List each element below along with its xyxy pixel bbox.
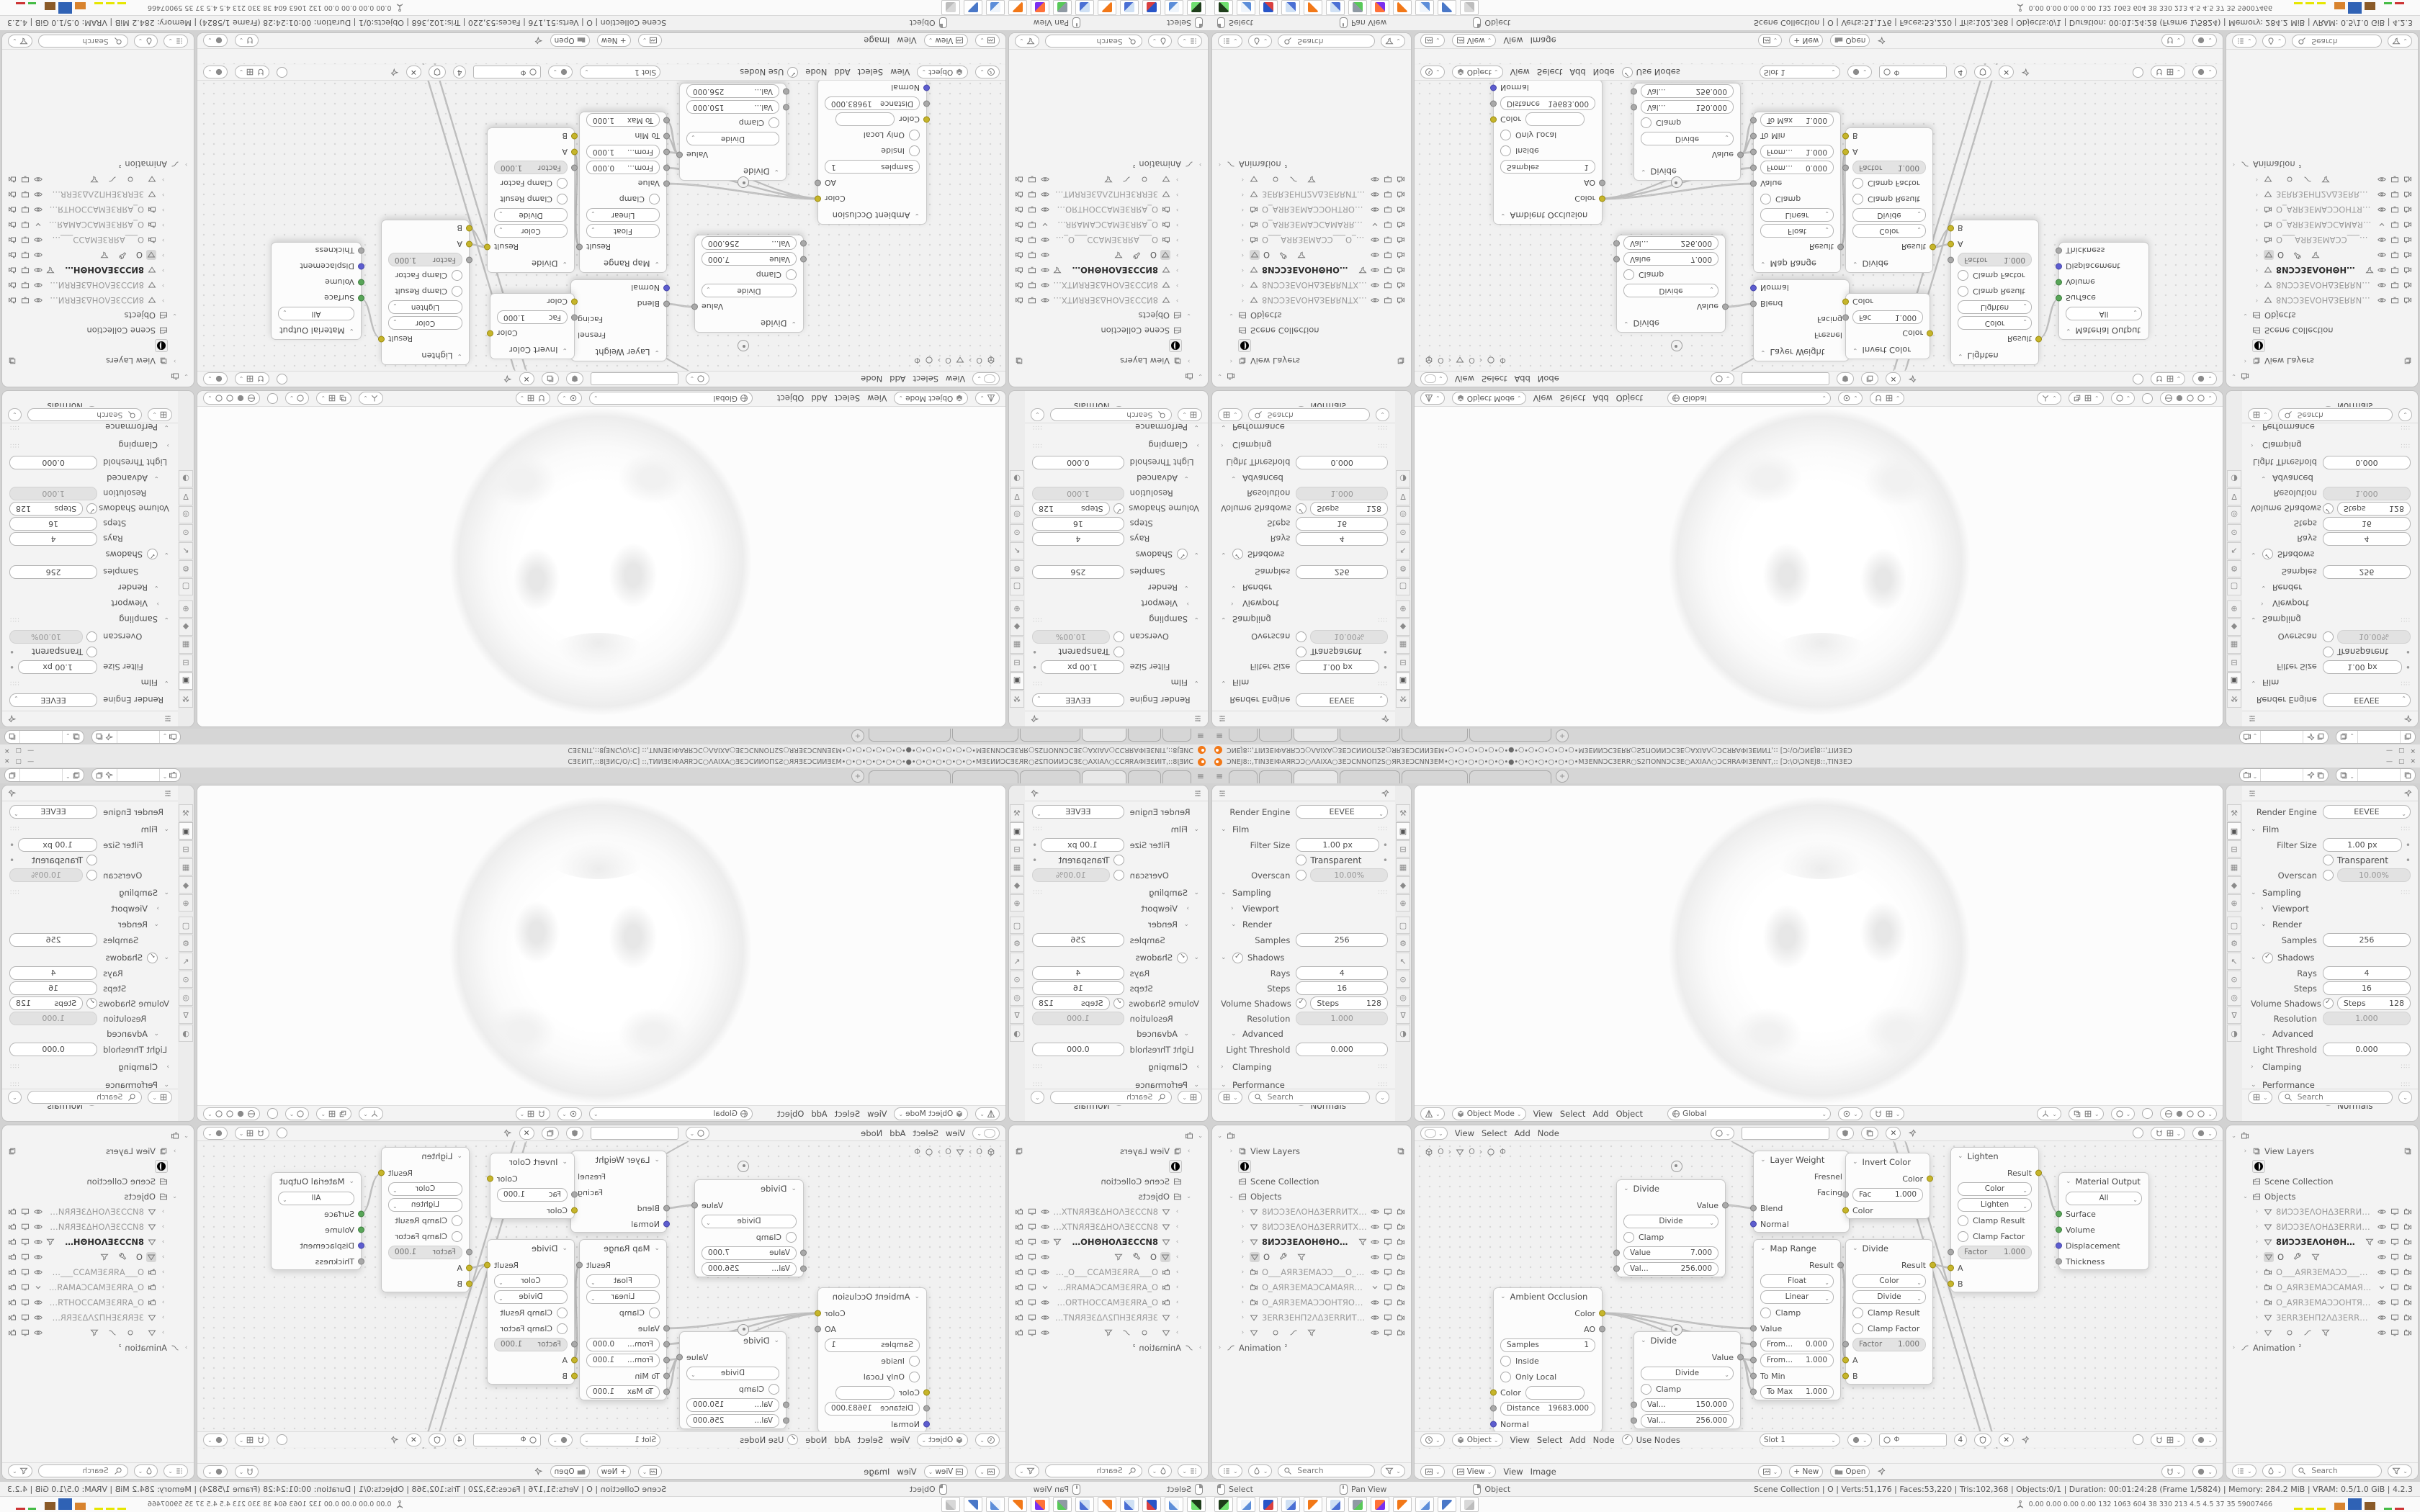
eye-toggle-icon[interactable] (2378, 1223, 2386, 1231)
outliner-row-8ИƆƆ3EΛOHΔ3ERRИTX3ET0T3EXT[interactable]: ›8ИƆƆ3EΛOHΔ3ERRИTX3ET0T3EXT (5, 1219, 189, 1234)
outliner-row-globebtn[interactable] (2231, 338, 2415, 354)
properties-tab-0[interactable]: ⚒ (1010, 690, 1024, 708)
proportional-toggle[interactable] (277, 1128, 287, 1138)
node-select[interactable]: Divide (686, 1367, 779, 1380)
camera-toggle-icon[interactable] (8, 297, 17, 305)
outliner-row-8ИƆƆ3EΛOHΔ3ERRИTX3ET0T3EXT[interactable]: ›8ИƆƆ3EΛOHΔ3ERRИTX3ET0T3EXT (5, 1204, 189, 1219)
menu-view[interactable]: View (867, 1109, 887, 1119)
rays-field[interactable]: 4 (2323, 532, 2411, 546)
taskbar-app-notepad[interactable] (1237, 1497, 1255, 1512)
input-socket[interactable] (1750, 181, 1757, 187)
node-header[interactable]: ⌄Map Range (580, 1240, 666, 1257)
filter-button[interactable] (1381, 35, 1405, 48)
eye-toggle-icon[interactable] (2378, 1313, 2386, 1322)
material-browse-button[interactable] (1711, 373, 1735, 386)
snap-dropdown[interactable] (516, 1107, 551, 1120)
outliner-row-8ИƆƆ3EΛOHΘHOΛ3EƆƆИ8[interactable]: ›8ИƆƆ3EΛOHΘHOΛ3EƆƆИ8 (1012, 263, 1204, 278)
node-lighten[interactable]: ⌄LightenResultColorLightenClamp ResultCl… (1950, 1147, 2039, 1292)
filter-button[interactable] (8, 1464, 32, 1477)
workspace-tab-1[interactable] (1162, 770, 1191, 783)
shading-wireframe-icon[interactable] (2164, 395, 2173, 403)
clamp-factor-checkbox[interactable] (1958, 271, 1968, 282)
outliner-row-mesh[interactable]: › (1216, 1325, 1408, 1340)
eye-toggle-icon[interactable] (1041, 1298, 1049, 1307)
input-socket[interactable] (1490, 1390, 1497, 1396)
camera-toggle-icon[interactable] (1397, 251, 1405, 260)
section-render[interactable]: ⌄Render (1221, 917, 1388, 932)
properties-tab-6[interactable]: ▢ (1396, 578, 1410, 595)
input-socket[interactable] (1842, 299, 1849, 305)
menu-view[interactable]: View (946, 1128, 965, 1138)
shading-wireframe-icon[interactable] (247, 395, 256, 403)
funnel-icon[interactable] (1297, 251, 1306, 260)
properties-tab-8[interactable]: ↖ (2227, 542, 2241, 559)
section-advanced[interactable]: ⌄Advanced (1221, 470, 1388, 486)
layers-toggle-icon[interactable] (1397, 357, 1405, 366)
world-icon[interactable] (1169, 1160, 1182, 1173)
monitor-toggle-icon[interactable] (1384, 282, 1392, 290)
node-material-output[interactable]: ⌄Material OutputAllSurfaceVolumeDisplace… (271, 242, 362, 340)
outliner-row-O_AЯR3EMAƆƆOHTЯO_O_OЯTH[interactable]: ›O_AЯR3EMAƆƆOHTЯO_O_OЯTH (2231, 1295, 2415, 1310)
input-socket[interactable] (1750, 1221, 1757, 1228)
eye-toggle-icon[interactable] (2378, 266, 2386, 275)
eye-toggle-icon[interactable] (34, 191, 42, 199)
node-value-field[interactable]: Factor1.000 (1852, 161, 1926, 175)
properties-tab-6[interactable]: ▢ (179, 578, 193, 595)
input-socket[interactable] (466, 225, 472, 232)
taskbar-app-monitor-app[interactable] (1053, 1497, 1072, 1512)
monitor-toggle-icon[interactable] (1028, 1207, 1036, 1216)
eye-toggle-icon[interactable] (2378, 282, 2386, 290)
input-socket[interactable] (571, 133, 578, 140)
new-image-button[interactable]: + New (597, 1465, 631, 1478)
proportional-toggle[interactable] (277, 1434, 287, 1445)
transparent-checkbox[interactable] (2323, 855, 2334, 865)
eye-toggle-icon[interactable] (2378, 1253, 2386, 1261)
shader-type-dropdown[interactable]: Object (1452, 1434, 1503, 1446)
output-socket[interactable] (1599, 180, 1605, 186)
shading-wireframe-icon[interactable] (247, 1110, 256, 1118)
camera-toggle-icon[interactable] (1015, 236, 1023, 245)
taskbar-app-blender[interactable] (1008, 1497, 1027, 1512)
transparent-checkbox[interactable] (86, 855, 97, 865)
camera-toggle-icon[interactable] (1015, 1207, 1023, 1216)
overlays-dropdown[interactable] (2069, 1107, 2104, 1120)
outliner-row-O___AЯR3EMAƆƆ___O___ƆƆAM3[interactable]: ›O___AЯR3EMAƆƆ___O___ƆƆAM3 (1012, 233, 1204, 248)
copy-icon[interactable] (2403, 771, 2412, 780)
steps-field[interactable]: 16 (1032, 517, 1124, 531)
chevi-toggle-icon[interactable] (1041, 221, 1049, 230)
unlink-button[interactable]: ✕ (519, 373, 534, 386)
outliner-search[interactable] (1045, 1464, 1142, 1477)
input-socket[interactable] (800, 256, 807, 263)
reroute-node[interactable] (738, 176, 749, 188)
monitor-toggle-icon[interactable] (2390, 206, 2399, 215)
taskbar-app-calculator[interactable] (1281, 0, 1300, 15)
funnel-icon[interactable] (2321, 1328, 2330, 1337)
properties-tab-11[interactable]: ∇ (179, 488, 193, 505)
outliner-row-Scene Collection[interactable]: Scene Collection (1216, 1174, 1408, 1189)
properties-tab-7[interactable]: ⚙ (1010, 560, 1024, 577)
samples-field[interactable]: 256 (1032, 933, 1124, 947)
properties-search-input[interactable] (2296, 410, 2388, 420)
taskbar-app-terminal[interactable] (1187, 1497, 1206, 1512)
monitor-toggle-icon[interactable] (1384, 1298, 1392, 1307)
mode-dropdown[interactable]: Object Mode (894, 1107, 968, 1120)
node-layer-weight[interactable]: ⌄Layer WeightFresnelFacingBlendNormal (570, 279, 667, 361)
clamp-checkbox[interactable] (1641, 118, 1652, 129)
circle-icon[interactable] (2285, 176, 2294, 184)
menu-select[interactable]: Select (913, 374, 938, 384)
eye-toggle-icon[interactable] (1041, 251, 1049, 260)
camera-toggle-icon[interactable] (8, 236, 17, 245)
node-value-field[interactable]: Samples1 (825, 1338, 920, 1352)
samples-field[interactable]: 256 (1032, 565, 1124, 579)
pin-icon[interactable] (8, 789, 17, 798)
menu-object[interactable]: Object (777, 394, 804, 404)
filter-mode-button[interactable] (2262, 35, 2287, 48)
open-image-button[interactable]: Open (1830, 1465, 1870, 1478)
outliner-row-3ERR3EHΠ2ΛΔ3ERRИTX3ET0T3EXT[interactable]: ›3ERR3EHΠ2ΛΔ3ERRИTX3ET0T3EXT (1012, 1310, 1204, 1325)
properties-tab-10[interactable]: ◎ (1010, 989, 1024, 1006)
properties-tab-12[interactable]: ◑ (1010, 1025, 1024, 1042)
image-browse-button[interactable] (638, 35, 663, 48)
node-value-field[interactable]: From...0.000 (586, 161, 660, 175)
node-select[interactable]: Divide (1852, 209, 1926, 222)
section-shadows[interactable]: ⌄Shadows (9, 950, 169, 966)
options-button[interactable] (1031, 408, 1044, 421)
properties-editor-icon[interactable] (1218, 789, 1227, 798)
material-name-field[interactable] (1742, 373, 1829, 386)
section-clamping[interactable]: ›Clamping∷∷ (9, 437, 169, 453)
section-render[interactable]: ⌄Render (1032, 917, 1199, 932)
monitor-toggle-icon[interactable] (1384, 1313, 1392, 1322)
eye-toggle-icon[interactable] (34, 1313, 42, 1322)
monitor-toggle-icon[interactable] (1028, 191, 1036, 199)
taskbar-app-firefox[interactable] (1031, 1497, 1049, 1512)
taskbar-app-disabled-app[interactable] (941, 0, 960, 15)
overscan-toggle[interactable] (1296, 631, 1307, 642)
properties-tab-7[interactable]: ⚙ (179, 935, 193, 952)
filter-mode-button[interactable] (1148, 35, 1173, 48)
properties-tab-5[interactable]: ⊕ (1396, 600, 1410, 618)
eye-toggle-icon[interactable] (34, 1253, 42, 1261)
wrench-icon[interactable] (1279, 1253, 1288, 1261)
pin-icon[interactable] (2403, 715, 2412, 724)
properties-tab-9[interactable]: ⊙ (1010, 524, 1024, 541)
volume-shadows-toggle[interactable] (1113, 998, 1124, 1009)
steps-field[interactable]: 16 (1296, 981, 1388, 995)
monitor-toggle-icon[interactable] (1028, 251, 1036, 260)
taskbar-app-terminal[interactable] (1214, 1497, 1233, 1512)
camera-toggle-icon[interactable] (1015, 1313, 1023, 1322)
color-swatch-field[interactable] (835, 1386, 895, 1400)
editor-type-button[interactable] (1420, 373, 1448, 386)
outliner-row-scene[interactable]: ⌄ (5, 1128, 189, 1143)
shadows-checkbox[interactable] (2262, 953, 2273, 963)
camera-toggle-icon[interactable] (1397, 1313, 1405, 1322)
world-icon[interactable] (2252, 1160, 2265, 1173)
filter-size-field[interactable]: 1.00 px (2323, 660, 2402, 674)
eye-toggle-icon[interactable] (1371, 251, 1379, 260)
volume-shadows-field[interactable]: Steps128 (2337, 996, 2411, 1010)
menu-select[interactable]: Select (1482, 1128, 1507, 1138)
outliner-row-8ИƆƆ3EΛOHΔ3ERRИTX3ET0T3EXT[interactable]: ›8ИƆƆ3EΛOHΔ3ERRИTX3ET0T3EXT (2231, 1204, 2415, 1219)
input-socket[interactable] (783, 89, 789, 95)
node-invert-color[interactable]: ⌄Invert ColorColorFac1.000Color (490, 1153, 575, 1219)
output-socket[interactable] (691, 304, 698, 310)
node-select[interactable]: Lighten (1958, 1198, 2032, 1212)
node-header[interactable]: ⌄Map Range (580, 255, 666, 272)
menu-image[interactable]: Image (864, 1467, 889, 1477)
pin-icon[interactable] (2403, 789, 2412, 798)
only-local-checkbox[interactable] (909, 130, 920, 141)
output-socket[interactable] (2035, 336, 2042, 343)
node-value-field[interactable]: Value7.000 (1623, 1246, 1718, 1260)
workspace-tab-6[interactable] (869, 729, 951, 742)
minimize-button[interactable]: — (2386, 747, 2393, 754)
input-socket[interactable] (466, 241, 472, 248)
input-socket[interactable] (2056, 1259, 2062, 1265)
monitor-toggle-icon[interactable] (1028, 206, 1036, 215)
clamp-result-checkbox[interactable] (557, 1308, 568, 1318)
node-value-field[interactable]: Distance19683.000 (825, 1402, 920, 1416)
render-engine-select[interactable]: EEVEE (2323, 693, 2411, 707)
world-icon[interactable] (1238, 340, 1251, 353)
input-socket[interactable] (1490, 117, 1497, 123)
camera-toggle-icon[interactable] (2403, 1253, 2412, 1261)
monitor-toggle-icon[interactable] (1384, 1223, 1392, 1231)
monitor-toggle-icon[interactable] (2390, 1223, 2399, 1231)
output-socket[interactable] (1837, 1262, 1844, 1269)
taskbar-app-firefox[interactable] (1371, 0, 1389, 15)
properties-search[interactable] (27, 408, 143, 421)
node-select[interactable]: Divide (1623, 1215, 1718, 1228)
properties-tab-11[interactable]: ∇ (2227, 1007, 2241, 1024)
mode-dropdown[interactable]: Object Mode (1452, 392, 1526, 405)
eye-toggle-icon[interactable] (1041, 1238, 1049, 1246)
view-layer-name-field[interactable] (19, 731, 63, 743)
view-layer-name-field[interactable] (2357, 769, 2401, 781)
outliner-row-3ERR3EHΠ2ΛΔ3ERRИTX3ET0T3EXT[interactable]: ›3ERR3EHΠ2ΛΔ3ERRИTX3ET0T3EXT (1216, 187, 1408, 202)
properties-tab-8[interactable]: ↖ (179, 953, 193, 970)
restore-button[interactable]: ▢ (2398, 758, 2405, 765)
outliner-row-Scene Collection[interactable]: Scene Collection (2231, 1174, 2415, 1189)
monitor-toggle-icon[interactable] (1028, 1268, 1036, 1277)
section-shadows[interactable]: ⌄Shadows (1221, 546, 1388, 562)
properties-tab-3[interactable]: ▦ (1396, 858, 1410, 876)
monitor-toggle-icon[interactable] (2390, 221, 2399, 230)
node-value-field[interactable]: Factor1.000 (1958, 253, 2032, 267)
outliner-row-O_AЯR3EMAƆƆOHTЯO_O_OЯTH[interactable]: ›O_AЯR3EMAƆƆOHTЯO_O_OЯTH (1216, 202, 1408, 217)
node-header[interactable]: ⌄Layer Weight (571, 1151, 666, 1169)
node-header[interactable]: ⌄Ambient Occlusion (818, 1288, 926, 1305)
outliner-row-8ИƆƆ3EΛOHΔ3ERRИTX3ET0T3EXT[interactable]: ›8ИƆƆ3EΛOHΔ3ERRИTX3ET0T3EXT (2231, 1219, 2415, 1234)
input-socket[interactable] (663, 181, 670, 187)
eye-toggle-icon[interactable] (1041, 206, 1049, 215)
resolution-field[interactable]: 1.000 (9, 1012, 97, 1025)
eye-toggle-icon[interactable] (1041, 1207, 1049, 1216)
funnel-icon[interactable] (2365, 266, 2374, 275)
node-select[interactable]: Divide (494, 1290, 568, 1304)
viewport-3d[interactable]: Object Mode View Select Add Object Globa… (1414, 390, 2223, 727)
input-socket[interactable] (358, 1259, 364, 1265)
menu-node[interactable]: Node (805, 1435, 827, 1445)
input-socket[interactable] (1750, 1373, 1757, 1380)
volume-shadows-field[interactable]: Steps128 (9, 502, 83, 516)
shading-wireframe-icon[interactable] (2164, 1110, 2173, 1118)
editor-type-button[interactable] (975, 35, 1000, 48)
overscan-toggle[interactable] (1296, 870, 1307, 881)
node-header[interactable]: ⌄Map Range (1754, 1240, 1840, 1257)
taskbar-app-documents[interactable] (1438, 0, 1456, 15)
monitor-toggle-icon[interactable] (21, 221, 30, 230)
eye-toggle-icon[interactable] (2378, 1207, 2386, 1216)
circle-icon[interactable] (126, 176, 135, 184)
workspace-tab-1[interactable] (1229, 729, 1258, 742)
node-value-field[interactable]: Factor1.000 (494, 161, 568, 175)
properties-tab-1[interactable]: ▣ (2227, 822, 2241, 840)
image-mode-dropdown[interactable]: View (1452, 1465, 1497, 1478)
viewport-3d[interactable]: Object Mode View Select Add Object Globa… (197, 390, 1006, 727)
properties-tab-11[interactable]: ∇ (2227, 488, 2241, 505)
taskbar-app-terminal[interactable] (1187, 0, 1206, 15)
image-mode-dropdown[interactable]: View (924, 35, 969, 48)
menu-hamburger-icon[interactable]: ≡ (1197, 771, 1204, 781)
properties-tab-2[interactable]: ⊟ (1396, 654, 1410, 672)
menu-image[interactable]: Image (1531, 1467, 1556, 1477)
camera-toggle-icon[interactable] (2403, 297, 2412, 305)
outliner-row-View Layers[interactable]: ›View Layers (1012, 354, 1204, 369)
node-divide[interactable]: ⌄DivideValueDivideClampVal...150.000Val.… (1633, 1331, 1741, 1429)
eye-toggle-icon[interactable] (34, 1223, 42, 1231)
eye-toggle-icon[interactable] (34, 1328, 42, 1337)
editor-type-button[interactable] (1218, 408, 1242, 421)
node-divide[interactable]: ⌄DivideValueDivideClampValue7.000Val...2… (694, 235, 804, 333)
node-header[interactable]: ⌄Layer Weight (1754, 1151, 1849, 1169)
outliner-row-O_AЯR3EMAƆCAMAЯRAИNAΠ_Ɔ[interactable]: ›O_AЯR3EMAƆCAMAЯRAИNAΠ_Ɔ (2231, 1279, 2415, 1295)
overscan-field[interactable]: 10.00% (1310, 868, 1388, 882)
outliner-row-8ИƆƆ3EΛOHΔ3ERRИTX3ET0T3EXT[interactable]: ›8ИƆƆ3EΛOHΔ3ERRИTX3ET0T3EXT (2231, 293, 2415, 308)
taskbar-app-calculator[interactable] (1120, 1497, 1139, 1512)
camera-toggle-icon[interactable] (2403, 206, 2412, 215)
properties-search[interactable] (1248, 408, 1371, 421)
material-browse-button[interactable] (1847, 66, 1872, 79)
node-layer-weight[interactable]: ⌄Layer WeightFresnelFacingBlendNormal (1753, 1151, 1850, 1233)
node-header[interactable]: ⌄Divide (1634, 163, 1740, 180)
taskbar-app-disabled-app[interactable] (941, 1497, 960, 1512)
monitor-toggle-icon[interactable] (21, 236, 30, 245)
funnel-icon[interactable] (1307, 176, 1316, 184)
properties-tab-9[interactable]: ⊙ (179, 524, 193, 541)
light-threshold-field[interactable]: 0.000 (1296, 456, 1388, 469)
node-value-field[interactable]: Fac1.000 (497, 311, 568, 325)
proportional-toggle[interactable] (277, 374, 287, 384)
light-threshold-field[interactable]: 0.000 (1296, 1043, 1388, 1056)
node-header[interactable]: ⌄Divide (695, 1180, 803, 1197)
section-film[interactable]: ⌄Film∷∷ (9, 822, 169, 837)
outliner-row-Scene Collection[interactable]: Scene Collection (1216, 323, 1408, 338)
input-socket[interactable] (800, 240, 807, 247)
properties-tab-6[interactable]: ▢ (1010, 578, 1024, 595)
camera-toggle-icon[interactable] (1015, 1283, 1023, 1292)
shading-modes[interactable] (2160, 1107, 2217, 1120)
node-material-output[interactable]: ⌄Material OutputAllSurfaceVolumeDisplace… (2058, 1172, 2149, 1270)
outliner-row-Scene Collection[interactable]: Scene Collection (1012, 1174, 1204, 1189)
output-socket[interactable] (484, 1262, 490, 1269)
close-button[interactable]: ✕ (4, 747, 10, 754)
editor-type-button[interactable] (2248, 408, 2272, 421)
menu-add[interactable]: Add (834, 1435, 850, 1445)
minimize-button[interactable]: — (2386, 758, 2393, 765)
output-socket[interactable] (815, 180, 821, 186)
shadows-checkbox[interactable] (1177, 549, 1188, 560)
pin-icon[interactable] (1877, 1467, 1886, 1476)
properties-tab-10[interactable]: ◎ (179, 506, 193, 523)
menu-view[interactable]: View (1503, 1467, 1523, 1477)
outliner-search[interactable] (38, 35, 128, 48)
node-divide[interactable]: ⌄DivideResultColorDivideClamp ResultClam… (487, 1239, 575, 1385)
section-advanced[interactable]: ⌄Advanced (1032, 470, 1199, 486)
funnel-icon[interactable] (1114, 1253, 1123, 1261)
editor-type-button[interactable] (972, 1127, 1000, 1140)
properties-tab-7[interactable]: ⚙ (2227, 560, 2241, 577)
properties-tab-10[interactable]: ◎ (179, 989, 193, 1006)
camera-toggle-icon[interactable] (1397, 221, 1405, 230)
node-canvas[interactable]: O› O› Φ ⌄DivideValueDivideClampValue7.00… (197, 1141, 1005, 1449)
properties-tab-3[interactable]: ▦ (1010, 636, 1024, 654)
filter-button[interactable] (1381, 1464, 1405, 1477)
options-button[interactable] (8, 408, 22, 421)
properties-tab-1[interactable]: ▣ (1396, 672, 1410, 690)
properties-tab-2[interactable]: ⊟ (1010, 654, 1024, 672)
menu-view[interactable]: View (1455, 1128, 1474, 1138)
material-browse-button[interactable] (1711, 1127, 1735, 1140)
input-socket[interactable] (1842, 1207, 1849, 1214)
editor-type-button[interactable] (1420, 1434, 1445, 1446)
outliner-row-Objects[interactable]: ⌄Objects (2231, 308, 2415, 323)
filter-size-field[interactable]: 1.00 px (1041, 660, 1124, 674)
properties-tab-2[interactable]: ⊟ (1010, 840, 1024, 858)
scene-selector[interactable] (91, 730, 181, 744)
eye-toggle-icon[interactable] (1041, 1328, 1049, 1337)
overscan-toggle[interactable] (1113, 631, 1124, 642)
properties-tab-1[interactable]: ▣ (1396, 822, 1410, 840)
options-button[interactable] (2398, 408, 2412, 421)
node-select[interactable]: All (278, 1192, 354, 1205)
input-socket[interactable] (663, 285, 670, 292)
outliner-row-Animation[interactable]: ›Animation² (2231, 1340, 2415, 1355)
eye-toggle-icon[interactable] (1371, 1207, 1379, 1216)
taskbar-app-notepad[interactable] (986, 1497, 1005, 1512)
outliner-row-O_AЯR3EMAƆCAMAЯRAИNAΠ_Ɔ[interactable]: ›O_AЯR3EMAƆCAMAЯRAИNAΠ_Ɔ (1012, 217, 1204, 233)
menu-node[interactable]: Node (861, 374, 882, 384)
node-divide[interactable]: ⌄DivideValueDivideClampValue7.000Val...2… (1616, 1179, 1726, 1277)
layers-toggle-icon[interactable] (8, 357, 17, 366)
overlays-dropdown[interactable] (2192, 373, 2217, 386)
node-header[interactable]: ⌄Lighten (382, 1148, 469, 1165)
outliner-row-Animation[interactable]: ›Animation² (5, 1340, 189, 1355)
editor-type-button[interactable] (975, 1434, 1000, 1446)
input-socket[interactable] (358, 279, 364, 286)
pin-icon[interactable] (1381, 789, 1389, 798)
transparent-checkbox[interactable] (2323, 647, 2334, 657)
output-socket[interactable] (1599, 196, 1605, 202)
editor-type-button[interactable] (148, 408, 172, 421)
properties-tab-12[interactable]: ◑ (179, 1025, 193, 1042)
section-sampling[interactable]: ⌄Sampling∷∷ (1221, 611, 1388, 627)
properties-tab-5[interactable]: ⊕ (1396, 894, 1410, 912)
